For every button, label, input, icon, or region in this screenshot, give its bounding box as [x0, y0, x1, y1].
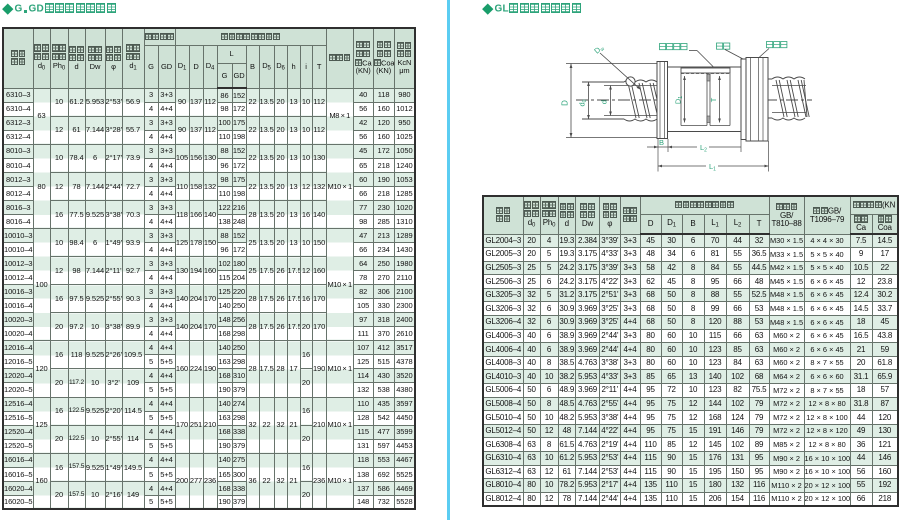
svg-text:T: T [709, 97, 718, 102]
svg-text:B: B [659, 138, 664, 147]
svg-text:d: d [600, 100, 609, 104]
svg-text:Dw: Dw [592, 42, 606, 56]
svg-text:D: D [561, 100, 570, 106]
